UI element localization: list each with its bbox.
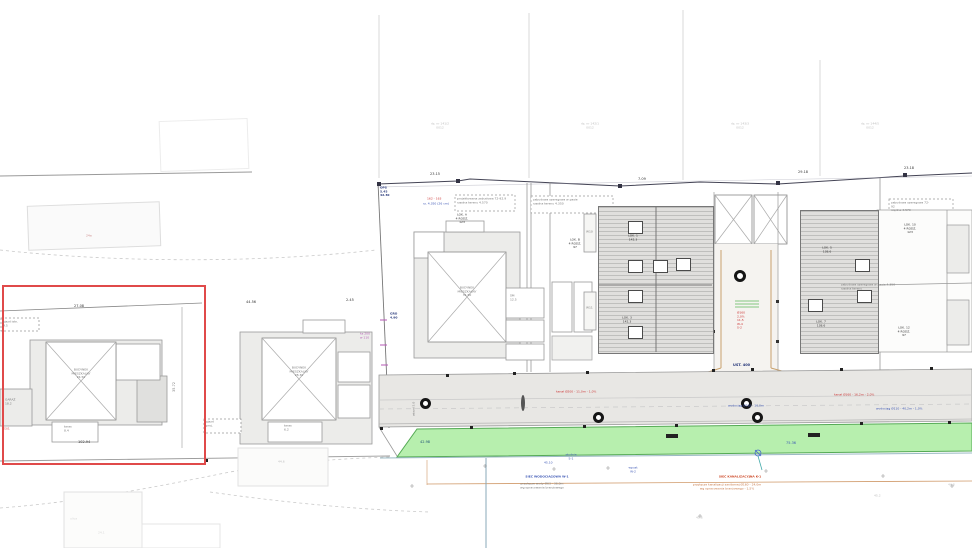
road-annotation: wjazd 5,0 xyxy=(412,402,416,416)
parcel-label: dz. nr 142/1 0012 xyxy=(565,122,615,130)
road-annotation-blue: wodociąg Ø110 - 16,0m xyxy=(728,404,764,408)
utility-sub-blue: przyłącze wody Ø63 - 36,0m wg opracowani… xyxy=(502,482,582,490)
utility-red-stack: Ø160 2,0% 11,5 W-4 S-2 xyxy=(737,311,745,330)
dashed-note: zabudowa szeregowa w pasie rzędna terenu… xyxy=(533,198,578,206)
red-note: 23/1 xyxy=(3,427,10,431)
dashed-note: zabudowa szeregowa 72-92 rzędna 4.570 xyxy=(891,201,932,212)
street-label: ulica xyxy=(70,517,77,521)
dimension-label: 23.18 xyxy=(904,166,914,170)
elevation-label: 75.36 xyxy=(786,441,796,445)
dimension-label: 44.6 xyxy=(278,460,285,464)
road-edge-top-left xyxy=(0,172,252,176)
hatched-building-a xyxy=(598,206,714,354)
annex-label: GARAŻ 18.2 xyxy=(5,398,15,406)
roof-window xyxy=(628,290,643,303)
entry-note-box: zjazd istn. 4.5 xyxy=(3,320,18,328)
utility-sub-red: przyłącze kanalizacji sanitarnej Ø160 - … xyxy=(672,483,782,491)
dashed-note: zabudowa szeregowa w pasie 4.350 rzędna … xyxy=(841,283,895,291)
garage-roofs xyxy=(715,195,787,244)
unit-label: LOK. 7 138.6 xyxy=(806,320,836,328)
road-annotation-red: kanał Ø160 - 16,2m - 2,0% xyxy=(834,393,874,397)
roof-window xyxy=(628,221,643,234)
utility-title-red: SIEĆ KANALIZACYJNA K-1 xyxy=(700,475,780,479)
dimension-label: 44.56 xyxy=(246,300,256,304)
roof-window xyxy=(808,299,823,312)
building-label: BUDYNEK MIESZKALNY 24.50 xyxy=(51,368,111,379)
hatched-building-b xyxy=(800,210,879,354)
manhole-icon xyxy=(593,412,604,423)
dimension-label: 27.08 xyxy=(74,304,84,308)
note-red: 162 - 163 xyxy=(427,197,441,201)
parcel-division-lines xyxy=(379,10,820,180)
entry-note-box: zjazd proj. xyxy=(206,420,214,428)
manhole-icon xyxy=(734,270,746,282)
utility-note: ks 200 w 110 xyxy=(360,332,370,340)
unit-label: LOK. 12 4 RODZ. 97 xyxy=(889,326,919,337)
utility-node-label: wpust W-2 xyxy=(618,466,648,474)
roof-window xyxy=(628,260,643,273)
dimension-label: 35.72 xyxy=(172,382,176,392)
utility-title-blue: SIEĆ WODOCIĄGOWA W-1 xyxy=(512,475,582,479)
elevation-label: 45.2 xyxy=(874,494,881,498)
existing-building-label: 24a xyxy=(86,234,92,238)
manhole-icon xyxy=(420,398,431,409)
road-annotation-red: kanał Ø200 - 11,0m - 1,0% xyxy=(556,390,596,394)
manhole-icon xyxy=(752,412,763,423)
building-label: BUDYNEK MIESZKALNY 28.30 xyxy=(269,366,329,377)
unit-label: LOK. 1 142.3 xyxy=(618,234,648,242)
street-designation: UST. 400 xyxy=(733,363,750,367)
porch-label: taras 8.4 xyxy=(64,425,72,433)
porch-label: taras 6.2 xyxy=(284,424,292,432)
unit-label: LOK. B 4 RODZ. 97 xyxy=(560,238,590,249)
complex-boundary xyxy=(377,173,972,188)
parcel-label: dz. nr 144/5 0012 xyxy=(845,122,895,130)
site-plan-drawing: dz. nr 141/2 0012 dz. nr 142/1 0012 dz. … xyxy=(0,0,972,548)
corner-note: OPS 5.45 42.30 xyxy=(380,186,389,197)
elevation-label: 45.6 xyxy=(696,516,703,520)
room-label: W11 xyxy=(586,306,593,310)
elevation-markers xyxy=(410,464,954,518)
roof-window xyxy=(857,290,872,303)
dimension-label: 2.45 xyxy=(346,298,354,302)
street-label: 24.1 xyxy=(98,531,105,535)
roof-window xyxy=(653,260,668,273)
utility-tick-marks xyxy=(380,320,388,365)
dashed-note: projektowana zabudowa 72-92.9 rzędna ter… xyxy=(457,197,506,205)
roof-window xyxy=(855,259,870,272)
building-label: BUDYNEK MIESZKALNY 31.50 xyxy=(437,286,497,297)
room-label: W10 xyxy=(586,230,593,234)
road-annotation-blue: wodociąg Ø110 - 40,2m - 1,0% xyxy=(876,407,923,411)
green-strip xyxy=(380,423,972,458)
dimension-label: 102.94 xyxy=(78,440,90,444)
dimension-label: 29.18 xyxy=(798,170,808,174)
boundary-note: GRO 4.90 xyxy=(390,312,397,320)
dimension-label: 7.09 xyxy=(638,177,646,181)
room-label: ŚM 12.5 xyxy=(510,294,517,302)
unit-label: LOK. A 4 RODZ. 123 xyxy=(447,213,477,224)
elevation-label: 42.98 xyxy=(420,440,430,444)
utility-node-label: 45.10 xyxy=(544,461,553,465)
parcel-label: dz. nr 143/3 0012 xyxy=(715,122,765,130)
note-blue: rz. 4.350 (26 cm) xyxy=(423,202,449,206)
elevation-label: 44.8 xyxy=(948,483,955,487)
roof-window xyxy=(676,258,691,271)
roof-window xyxy=(628,326,643,339)
unit-label: LOK. 5 138.6 xyxy=(812,246,842,254)
parcel-label: dz. nr 141/2 0012 xyxy=(415,122,465,130)
utility-node-label: studnia S-1 xyxy=(556,453,586,461)
dimension-label: 23.15 xyxy=(430,172,440,176)
existing-building-outline xyxy=(27,118,249,250)
unit-label: LOK. 3 142.3 xyxy=(612,316,642,324)
unit-label: LOK. 10 4 RODZ. 123 xyxy=(895,223,925,234)
